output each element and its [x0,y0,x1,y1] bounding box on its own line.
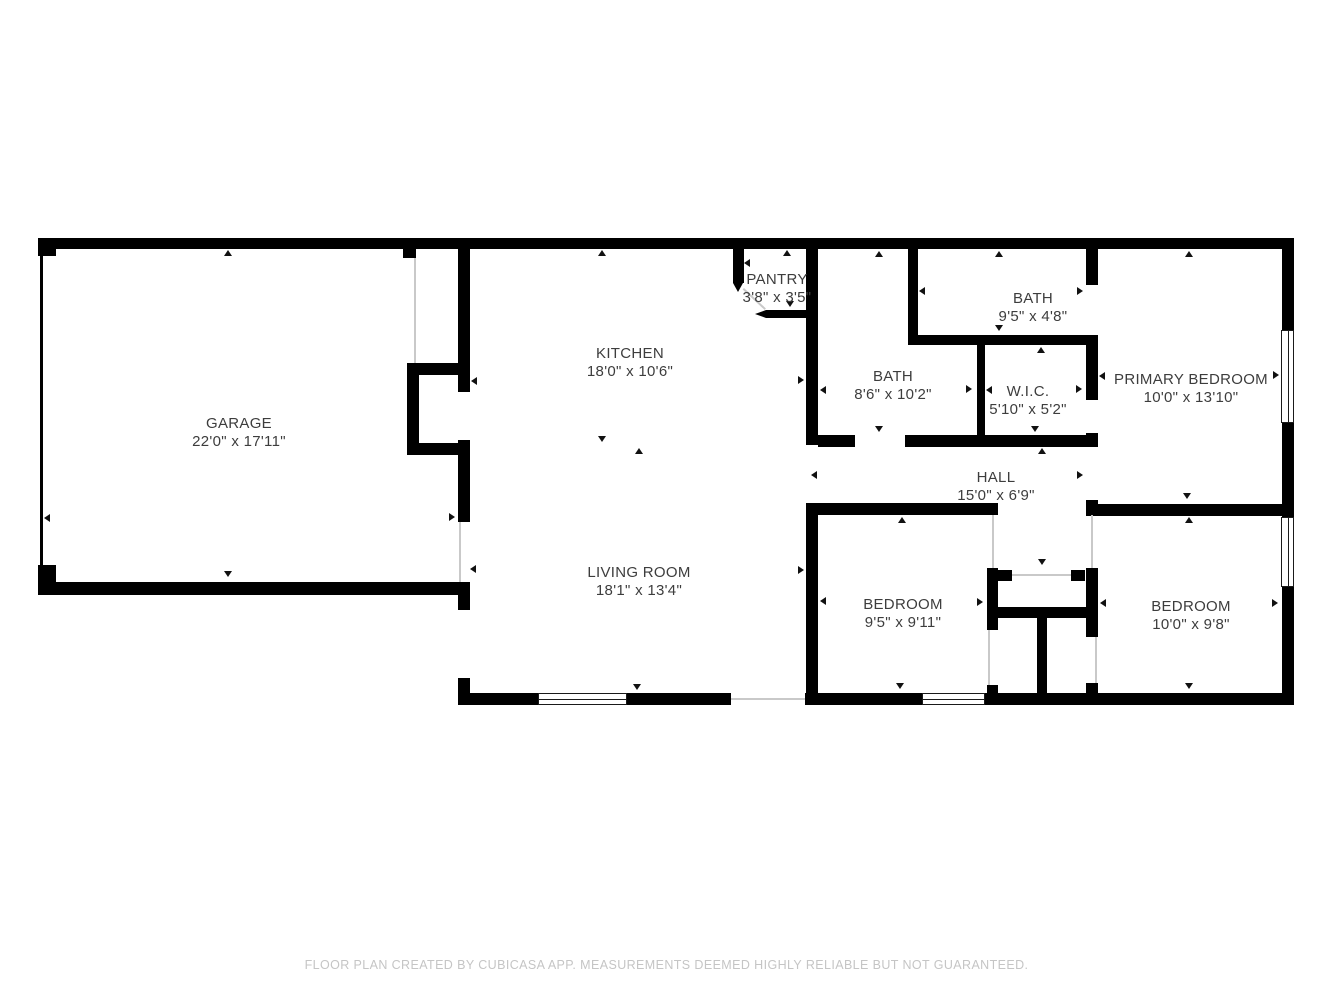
wall [1086,568,1098,637]
room-name: PANTRY [743,271,812,289]
wall [38,582,470,595]
dimension-marker [977,598,983,606]
room-name: LIVING ROOM [587,564,690,582]
room-dims: 3'8" x 3'5" [743,289,812,307]
wall [1086,433,1098,447]
room-name: HALL [957,469,1035,487]
wall [407,443,470,455]
wall [985,693,1294,705]
wall [977,345,985,437]
wall [905,435,1098,447]
wall-stub [403,249,416,258]
room-dims: 10'0" x 13'10" [1114,389,1268,407]
boundary-line [414,258,416,363]
dimension-marker [598,250,606,256]
dimension-marker [44,514,50,522]
wall [1282,587,1294,705]
dimension-marker [1037,347,1045,353]
room-dims: 9'5" x 9'11" [863,614,943,632]
window [1281,517,1294,587]
wall [987,607,1098,618]
wall [805,693,922,705]
dimension-marker [598,436,606,442]
wall [458,582,470,610]
dimension-marker [224,571,232,577]
wall [1037,618,1047,693]
door-opening-line [992,515,994,568]
room-label-bedroom: BEDROOM 9'5" x 9'11" [863,596,943,632]
room-name: KITCHEN [587,345,673,363]
wall [407,363,419,455]
dimension-marker [1077,471,1083,479]
dimension-marker [224,250,232,256]
floor-plan-canvas: GARAGE 22'0" x 17'11" KITCHEN 18'0" x 10… [0,0,1333,1000]
dimension-marker [1031,426,1039,432]
wall [818,435,855,447]
footer-disclaimer: FLOOR PLAN CREATED BY CUBICASA APP. MEAS… [305,958,1029,972]
room-label-bath: BATH 8'6" x 10'2" [854,368,932,404]
room-name: BEDROOM [1151,598,1231,616]
room-label-wic: W.I.C. 5'10" x 5'2" [989,383,1067,419]
room-label-garage: GARAGE 22'0" x 17'11" [192,415,286,451]
wall-taper [733,283,743,292]
wall [766,310,818,318]
dimension-marker [1183,493,1191,499]
wall-stub [998,570,1012,581]
closet-opening-line [988,630,990,685]
door-opening-line [1091,515,1093,568]
wall [38,238,56,256]
dimension-marker [820,386,826,394]
room-label-kitchen: KITCHEN 18'0" x 10'6" [587,345,673,381]
room-dims: 18'1" x 13'4" [587,582,690,600]
front-door-opening-line [731,698,805,700]
room-label-living-room: LIVING ROOM 18'1" x 13'4" [587,564,690,600]
wall [1282,249,1294,330]
dimension-marker [875,426,883,432]
wall [908,335,1098,345]
wall [908,249,918,335]
dimension-marker [471,377,477,385]
room-dims: 15'0" x 6'9" [957,487,1035,505]
dimension-marker [820,597,826,605]
garage-door-wall-line [40,256,43,567]
dimension-marker [798,376,804,384]
wall [987,568,998,630]
dimension-marker [783,250,791,256]
window [1281,330,1294,423]
dimension-marker [744,259,750,267]
wall [458,693,538,705]
wall [1086,335,1098,400]
room-dims: 10'0" x 9'8" [1151,616,1231,634]
room-dims: 8'6" x 10'2" [854,386,932,404]
dimension-marker [898,517,906,523]
room-label-bedroom-2: BEDROOM 10'0" x 9'8" [1151,598,1231,634]
room-name: BEDROOM [863,596,943,614]
garage-living-opening-line [459,522,461,582]
dimension-marker [635,448,643,454]
room-dims: 22'0" x 17'11" [192,433,286,451]
dimension-marker [798,566,804,574]
room-dims: 18'0" x 10'6" [587,363,673,381]
wall [1086,683,1098,705]
room-name: BATH [854,368,932,386]
wall [806,515,818,705]
dimension-marker [1038,448,1046,454]
dimension-marker [1099,372,1105,380]
dimension-marker [875,251,883,257]
wall [627,693,731,705]
room-name: GARAGE [192,415,286,433]
wall [458,678,470,705]
dimension-marker [470,565,476,573]
dimension-marker [1185,683,1193,689]
room-label-pantry: PANTRY 3'8" x 3'5" [743,271,812,307]
room-label-bath-2: BATH 9'5" x 4'8" [999,290,1068,326]
room-dims: 9'5" x 4'8" [999,308,1068,326]
wall [1282,423,1294,517]
dimension-marker [1077,287,1083,295]
dimension-marker [896,683,904,689]
dimension-marker [1100,599,1106,607]
dimension-marker [1272,599,1278,607]
wall-stub [1071,570,1085,581]
dimension-marker [1038,559,1046,565]
wall [987,685,998,705]
dimension-marker [1185,251,1193,257]
window [922,693,985,705]
wall-taper [755,310,766,318]
closet-opening-line [1095,637,1097,683]
dimension-marker [1185,517,1193,523]
dimension-marker [449,513,455,521]
wall [1086,249,1098,285]
dimension-marker [995,251,1003,257]
dimension-marker [633,684,641,690]
closet-opening-line [1012,574,1071,576]
window [538,693,627,705]
dimension-marker [1076,385,1082,393]
wall [1086,504,1294,516]
room-name: PRIMARY BEDROOM [1114,371,1268,389]
room-label-primary-bedroom: PRIMARY BEDROOM 10'0" x 13'10" [1114,371,1268,407]
room-dims: 5'10" x 5'2" [989,401,1067,419]
dimension-marker [1273,371,1279,379]
room-label-hall: HALL 15'0" x 6'9" [957,469,1035,505]
wall [38,238,1294,249]
dimension-marker [966,385,972,393]
room-name: BATH [999,290,1068,308]
room-name: W.I.C. [989,383,1067,401]
dimension-marker [919,287,925,295]
dimension-marker [811,471,817,479]
